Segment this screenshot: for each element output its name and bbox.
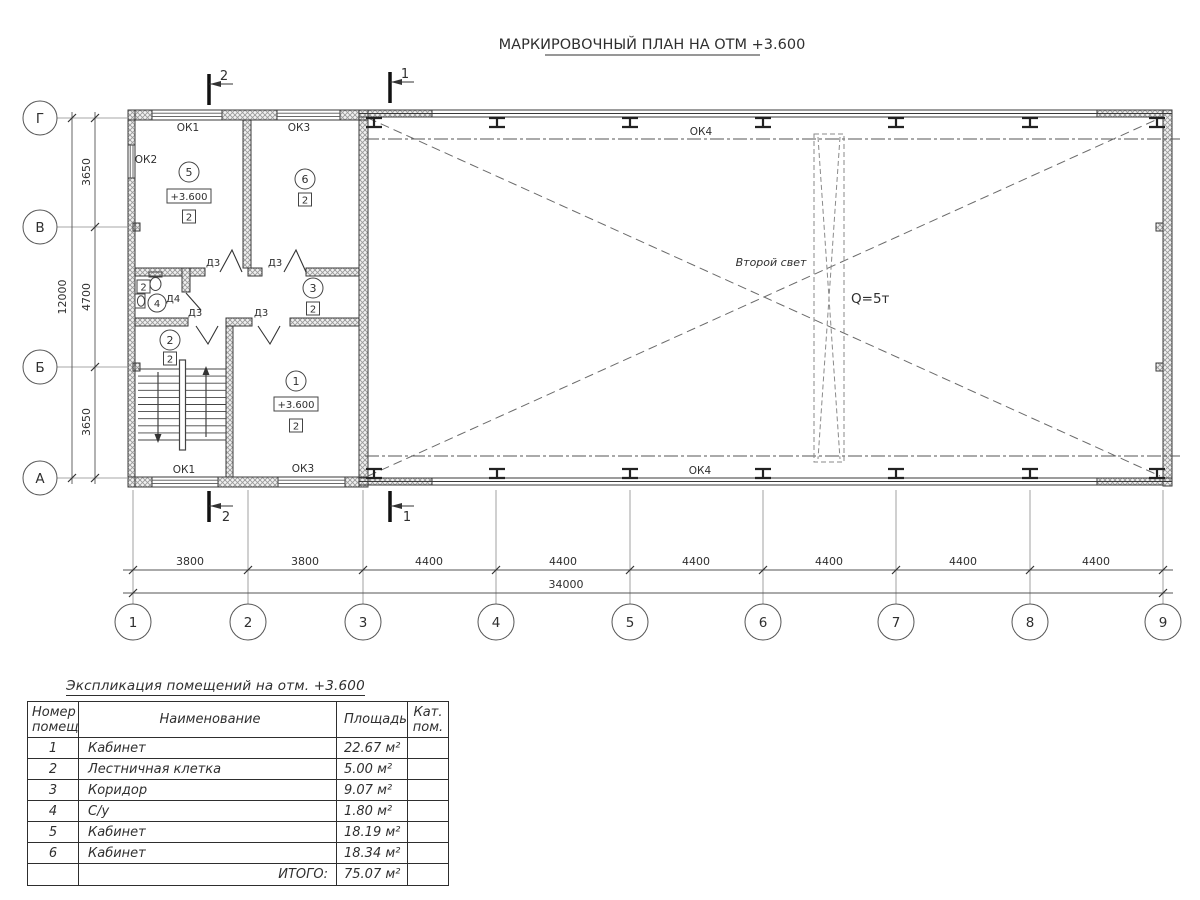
svg-text:9: 9 <box>1159 615 1168 631</box>
svg-text:6: 6 <box>302 173 309 186</box>
explication-table: Номерпомещ. Наименование Площадь Кат.пом… <box>27 701 449 886</box>
axis-2: 2 <box>230 604 266 640</box>
room-category <box>408 759 449 780</box>
explication-title: Экспликация помещений на отм. +3.600 <box>27 678 404 694</box>
svg-text:+3.600: +3.600 <box>170 192 207 203</box>
table-total-row: ИТОГО: 75.07 м² <box>28 864 449 886</box>
svg-text:1: 1 <box>293 375 300 388</box>
dim-1-2: 3800 <box>176 555 204 568</box>
window-labels: ОК1 ОК3 ОК2 ОК1 ОК3 ОК4 ОК4 <box>135 122 713 477</box>
axis-6: 6 <box>745 604 781 640</box>
room-2-label: 2 2 <box>160 330 180 366</box>
header-name: Наименование <box>79 702 337 738</box>
second-light-label: Второй свет <box>736 256 807 269</box>
axis-1: 1 <box>115 604 151 640</box>
dim-7-8: 4400 <box>949 555 977 568</box>
door-label-d3-1: Д3 <box>206 258 220 269</box>
room-area: 1.80 м² <box>337 801 408 822</box>
table-row: 5 Кабинет 18.19 м² <box>28 822 449 843</box>
room-name: Кабинет <box>79 822 337 843</box>
svg-text:4: 4 <box>492 615 501 631</box>
dim-5-6: 4400 <box>682 555 710 568</box>
room-6-label: 6 2 <box>295 169 315 207</box>
dim-8-9: 4400 <box>1082 555 1110 568</box>
svg-text:1: 1 <box>129 615 138 631</box>
svg-text:2: 2 <box>167 334 174 347</box>
section-label-2-bottom: 2 <box>222 510 230 525</box>
axis-a: А <box>23 461 57 495</box>
window-label-ok3-bottom: ОК3 <box>292 463 314 475</box>
axis-5: 5 <box>612 604 648 640</box>
room-area: 22.67 м² <box>337 738 408 759</box>
axis-7: 7 <box>878 604 914 640</box>
room-name: С/у <box>79 801 337 822</box>
svg-text:2: 2 <box>310 305 316 316</box>
svg-text:3: 3 <box>359 615 368 631</box>
dimensions-left: 3650 4700 3650 12000 <box>56 112 99 484</box>
wall-lines <box>128 110 1172 487</box>
svg-text:5: 5 <box>626 615 635 631</box>
axis-bubbles-left: Г В Б А <box>23 101 57 495</box>
axis-bubbles-bottom: 1 2 3 4 5 6 7 8 9 <box>115 604 1181 640</box>
room-number: 5 <box>28 822 79 843</box>
axis-9: 9 <box>1145 604 1181 640</box>
room-category <box>408 801 449 822</box>
svg-text:5: 5 <box>186 166 193 179</box>
room-number: 3 <box>28 780 79 801</box>
table-row: 3 Коридор 9.07 м² <box>28 780 449 801</box>
svg-text:Г: Г <box>36 111 44 127</box>
room-name: Коридор <box>79 780 337 801</box>
dim-g-v: 3650 <box>80 158 93 186</box>
room-number: 4 <box>28 801 79 822</box>
axis-4: 4 <box>478 604 514 640</box>
room-category <box>408 864 449 886</box>
room-number: 6 <box>28 843 79 864</box>
sink-bowl <box>137 296 144 306</box>
crane-capacity-label: Q=5т <box>851 291 890 307</box>
axis-g: Г <box>23 101 57 135</box>
svg-text:8: 8 <box>1026 615 1035 631</box>
dimensions-bottom: 3800 3800 4400 4400 4400 4400 4400 4400 … <box>123 555 1173 597</box>
room-area: 18.19 м² <box>337 822 408 843</box>
stairs <box>138 360 226 450</box>
header-room-number: Номерпомещ. <box>28 702 79 738</box>
section-label-1-top: 1 <box>401 67 409 82</box>
svg-text:2: 2 <box>302 196 308 207</box>
svg-text:Б: Б <box>35 360 44 376</box>
door-label-d3-4: Д3 <box>254 308 268 319</box>
dim-4-5: 4400 <box>549 555 577 568</box>
floor-plan-svg: МАРКИРОВОЧНЫЙ ПЛАН НА ОТМ +3.600 <box>0 0 1200 665</box>
svg-text:4: 4 <box>154 299 160 310</box>
axis-b: Б <box>23 350 57 384</box>
room-number: 1 <box>28 738 79 759</box>
window-label-ok2-left: ОК2 <box>135 154 157 166</box>
room-area: 18.34 м² <box>337 843 408 864</box>
svg-text:6: 6 <box>759 615 768 631</box>
svg-text:7: 7 <box>892 615 901 631</box>
door-label-d4: Д4 <box>166 294 180 305</box>
table-row: 2 Лестничная клетка 5.00 м² <box>28 759 449 780</box>
room-5-label: 5 +3.600 2 <box>167 162 211 224</box>
total-empty-cell <box>28 864 79 886</box>
section-label-1-bottom: 1 <box>403 510 411 525</box>
room-1-label: 1 +3.600 2 <box>274 371 318 433</box>
room-category <box>408 843 449 864</box>
door-label-d3-2: Д3 <box>268 258 282 269</box>
room-3-label: 3 2 <box>303 278 323 316</box>
section-label-2-top: 2 <box>220 69 228 84</box>
svg-text:2: 2 <box>293 422 299 433</box>
svg-text:3: 3 <box>310 282 317 295</box>
extension-lines <box>57 118 1163 604</box>
hall: Второй свет Q=5т <box>365 118 1180 476</box>
svg-text:В: В <box>35 220 44 236</box>
toilet-bowl <box>150 278 161 291</box>
drawing-title: МАРКИРОВОЧНЫЙ ПЛАН НА ОТМ +3.600 <box>499 35 806 53</box>
total-area: 75.07 м² <box>337 864 408 886</box>
room-area: 5.00 м² <box>337 759 408 780</box>
svg-text:2: 2 <box>186 213 192 224</box>
drawing-sheet: { "title": "МАРКИРОВОЧНЫЙ ПЛАН НА ОТМ +3… <box>0 0 1200 900</box>
axis-v: В <box>23 210 57 244</box>
svg-text:2: 2 <box>244 615 253 631</box>
dim-b-a: 3650 <box>80 408 93 436</box>
window-label-ok3-top: ОК3 <box>288 122 310 134</box>
explication: Экспликация помещений на отм. +3.600 Ном… <box>27 678 404 886</box>
room-category <box>408 822 449 843</box>
total-label: ИТОГО: <box>79 864 337 886</box>
header-area: Площадь <box>337 702 408 738</box>
room-category <box>408 738 449 759</box>
explication-header-row: Номерпомещ. Наименование Площадь Кат.пом… <box>28 702 449 738</box>
svg-text:2: 2 <box>167 355 173 366</box>
dim-total-bottom: 34000 <box>549 578 584 591</box>
svg-text:2: 2 <box>140 283 146 294</box>
room-name: Кабинет <box>79 843 337 864</box>
window-label-ok1-bottom: ОК1 <box>173 464 195 476</box>
door-label-d3-3: Д3 <box>188 308 202 319</box>
walls <box>128 110 1172 487</box>
room-area: 9.07 м² <box>337 780 408 801</box>
window-label-ok4-top: ОК4 <box>690 126 713 138</box>
room-name: Кабинет <box>79 738 337 759</box>
dim-total-left: 12000 <box>56 280 69 315</box>
table-row: 4 С/у 1.80 м² <box>28 801 449 822</box>
room-number: 2 <box>28 759 79 780</box>
room-name: Лестничная клетка <box>79 759 337 780</box>
table-row: 6 Кабинет 18.34 м² <box>28 843 449 864</box>
svg-text:А: А <box>35 471 45 487</box>
dim-v-b: 4700 <box>80 283 93 311</box>
axis-8: 8 <box>1012 604 1048 640</box>
dim-3-4: 4400 <box>415 555 443 568</box>
window-label-ok1-top: ОК1 <box>177 122 199 134</box>
dim-6-7: 4400 <box>815 555 843 568</box>
svg-text:+3.600: +3.600 <box>277 400 314 411</box>
axis-3: 3 <box>345 604 381 640</box>
header-category: Кат.пом. <box>408 702 449 738</box>
room-category <box>408 780 449 801</box>
window-label-ok4-bottom: ОК4 <box>689 465 712 477</box>
dim-2-3: 3800 <box>291 555 319 568</box>
table-row: 1 Кабинет 22.67 м² <box>28 738 449 759</box>
